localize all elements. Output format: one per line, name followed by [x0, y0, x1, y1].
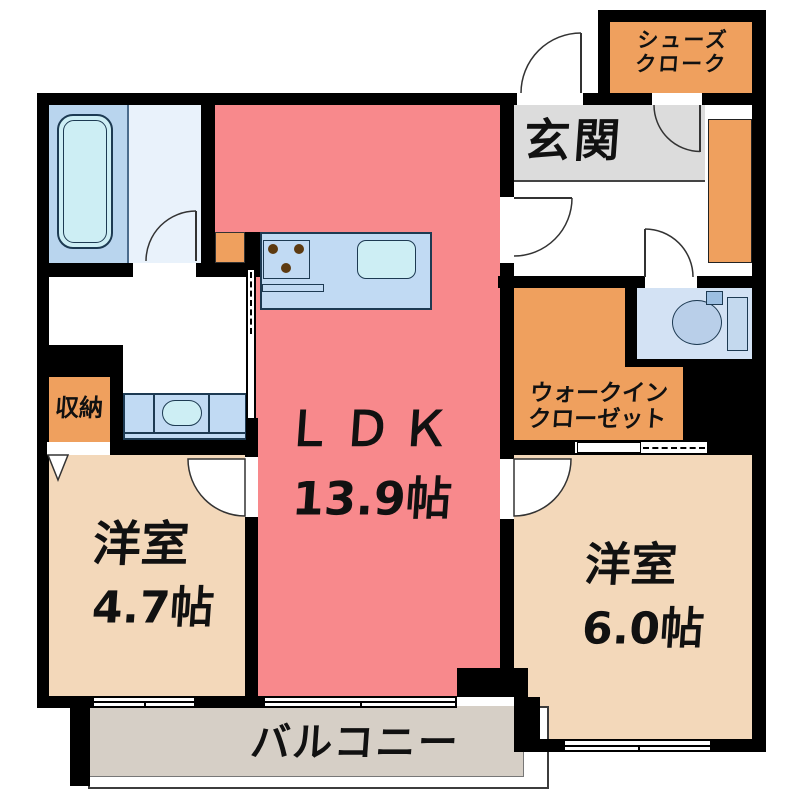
- door-arc-hall-ldk: [514, 198, 572, 256]
- door-swing-bedroom-west: [188, 459, 245, 516]
- label-ldk-name: ＬＤＫ: [283, 402, 461, 457]
- label-wic: ウォークイン クローゼット: [527, 381, 669, 434]
- door-arc-shoe-closet: [654, 105, 700, 152]
- label-bedroom-east-size: 6.0帖: [580, 605, 705, 656]
- label-wic-line2: クローゼット: [527, 407, 667, 433]
- label-shoe-closet-line2: クローク: [634, 52, 728, 76]
- door-arc-toilet: [645, 229, 693, 277]
- label-entrance: 玄関: [522, 115, 626, 168]
- label-bedroom-west-name: 洋室: [91, 517, 191, 572]
- label-shoe-closet-line1: シューズ: [636, 28, 730, 52]
- door-swing-bedroom-east: [514, 459, 571, 516]
- door-symbols-layer: [0, 0, 800, 800]
- label-wic-line1: ウォークイン: [529, 381, 669, 407]
- floorplan: 玄関 シューズ クローク ウォークイン クローゼット 収納 ＬＤＫ 13.9帖 …: [0, 0, 800, 800]
- label-shoe-closet: シューズ クローク: [634, 28, 729, 76]
- label-bedroom-east-name: 洋室: [583, 539, 679, 592]
- label-storage: 収納: [54, 395, 104, 423]
- label-bedroom-west-size: 4.7帖: [90, 584, 215, 635]
- storage-door-triangle: [48, 455, 68, 480]
- door-arc-bathroom: [146, 211, 196, 261]
- door-arc-entrance: [521, 33, 581, 93]
- label-ldk-size: 13.9帖: [290, 473, 453, 526]
- label-balcony: バルコニー: [249, 720, 461, 766]
